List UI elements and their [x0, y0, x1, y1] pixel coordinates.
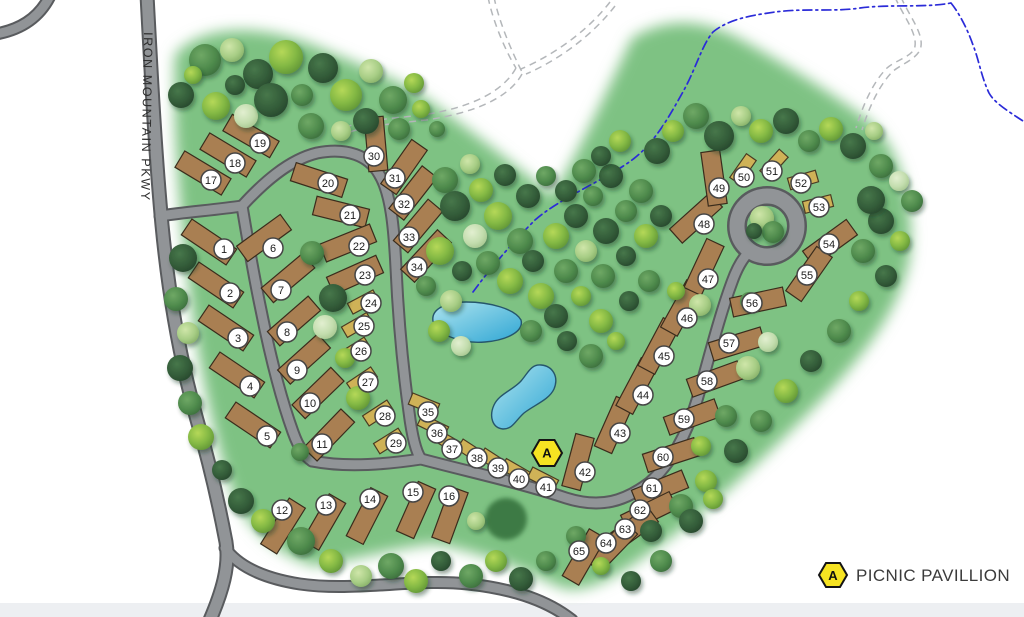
- site-number: 11: [316, 439, 327, 451]
- site-number-marker: 45: [654, 346, 674, 366]
- site-number: 50: [738, 172, 750, 184]
- site-number: 10: [304, 398, 316, 410]
- site-number: 15: [407, 487, 419, 499]
- tree-icon: [851, 239, 875, 263]
- tree-icon: [875, 265, 897, 287]
- tree-icon: [167, 355, 193, 381]
- site-number-marker: 54: [819, 234, 839, 254]
- site-number: 37: [446, 444, 458, 456]
- tree-icon: [564, 204, 588, 228]
- tree-icon: [599, 164, 623, 188]
- site-number-marker: 29: [386, 433, 406, 453]
- site-number-marker: 52: [791, 173, 811, 193]
- site-number: 19: [254, 138, 266, 150]
- tree-icon: [890, 231, 910, 251]
- tree-icon: [452, 261, 472, 281]
- tree-icon: [615, 200, 637, 222]
- tree-icon: [616, 246, 636, 266]
- tree-icon: [629, 179, 653, 203]
- site-number: 48: [698, 219, 710, 231]
- site-number: 29: [390, 438, 402, 450]
- tree-icon: [308, 53, 338, 83]
- tree-icon: [683, 103, 709, 129]
- site-number: 64: [600, 538, 612, 550]
- site-number-marker: 53: [809, 197, 829, 217]
- site-number: 26: [355, 346, 367, 358]
- site-number-marker: 47: [698, 269, 718, 289]
- site-number-marker: 19: [250, 133, 270, 153]
- site-number-marker: 6: [263, 238, 283, 258]
- site-number: 13: [320, 500, 332, 512]
- tree-clump-patch: [485, 498, 527, 540]
- site-number: 63: [619, 524, 631, 536]
- tree-icon: [330, 79, 362, 111]
- site-number-marker: 13: [316, 495, 336, 515]
- tree-icon: [840, 133, 866, 159]
- site-number-marker: 25: [354, 316, 374, 336]
- site-number-marker: 61: [642, 478, 662, 498]
- tree-icon: [497, 268, 523, 294]
- tree-icon: [507, 228, 533, 254]
- tree-icon: [736, 356, 760, 380]
- tree-icon: [857, 186, 885, 214]
- tree-icon: [849, 291, 869, 311]
- tree-icon: [572, 159, 596, 183]
- site-number-marker: 3: [228, 328, 248, 348]
- site-number-marker: 60: [653, 447, 673, 467]
- tree-icon: [225, 75, 245, 95]
- site-number-marker: 41: [536, 477, 556, 497]
- site-number-marker: 42: [575, 462, 595, 482]
- site-number-marker: 48: [694, 214, 714, 234]
- site-number: 35: [422, 407, 434, 419]
- site-number-marker: 56: [742, 293, 762, 313]
- site-number: 25: [358, 321, 370, 333]
- tree-icon: [554, 259, 578, 283]
- tree-icon: [609, 130, 631, 152]
- site-number: 34: [411, 262, 423, 274]
- site-number-marker: 39: [488, 458, 508, 478]
- site-number: 4: [247, 381, 253, 393]
- site-number: 18: [229, 158, 241, 170]
- site-number: 40: [513, 474, 525, 486]
- site-number-marker: 7: [271, 280, 291, 300]
- tree-icon: [404, 569, 428, 593]
- site-number-marker: 33: [399, 227, 419, 247]
- tree-icon: [313, 315, 337, 339]
- site-number: 27: [362, 377, 374, 389]
- site-number: 16: [443, 491, 455, 503]
- tree-icon: [544, 304, 568, 328]
- site-number-marker: 57: [719, 333, 739, 353]
- site-number-marker: 64: [596, 533, 616, 553]
- tree-icon: [827, 319, 851, 343]
- site-number: 24: [365, 298, 377, 310]
- site-number-marker: 15: [403, 482, 423, 502]
- tree-icon: [476, 251, 500, 275]
- tree-icon: [428, 320, 450, 342]
- tree-icon: [774, 379, 798, 403]
- tree-icon: [516, 184, 540, 208]
- legend-label: PICNIC PAVILLION: [856, 566, 1010, 585]
- campground-site-map: 1234567891011121314151617181920212223242…: [0, 0, 1024, 617]
- site-number: 32: [398, 199, 410, 211]
- tree-icon: [234, 104, 258, 128]
- tree-icon: [251, 509, 275, 533]
- site-number: 60: [657, 452, 669, 464]
- tree-icon: [901, 190, 923, 212]
- tree-icon: [188, 424, 214, 450]
- site-number-marker: 11: [312, 434, 332, 454]
- tree-icon: [169, 244, 197, 272]
- tree-icon: [404, 73, 424, 93]
- site-number: 9: [294, 365, 300, 377]
- tree-icon: [431, 551, 451, 571]
- tree-icon: [750, 410, 772, 432]
- map-canvas: 1234567891011121314151617181920212223242…: [0, 0, 1024, 617]
- tree-icon: [638, 270, 660, 292]
- site-number-marker: 18: [225, 153, 245, 173]
- site-number-marker: 17: [201, 170, 221, 190]
- tree-icon: [300, 241, 324, 265]
- tree-icon: [650, 205, 672, 227]
- tree-icon: [460, 154, 480, 174]
- site-number-marker: 28: [375, 406, 395, 426]
- site-number: 47: [702, 274, 714, 286]
- site-number: 8: [284, 327, 290, 339]
- tree-icon: [184, 66, 202, 84]
- site-number: 20: [322, 178, 334, 190]
- tree-icon: [350, 565, 372, 587]
- site-number: 43: [614, 428, 626, 440]
- tree-icon: [557, 331, 577, 351]
- tree-icon: [429, 121, 445, 137]
- site-number: 44: [637, 390, 649, 402]
- tree-icon: [291, 84, 313, 106]
- site-number-marker: 27: [358, 372, 378, 392]
- tree-icon: [536, 551, 556, 571]
- bottom-gray-strip: [0, 603, 1024, 617]
- site-number-marker: 24: [361, 293, 381, 313]
- tree-icon: [509, 567, 533, 591]
- tree-icon: [298, 113, 324, 139]
- site-number-marker: 9: [287, 360, 307, 380]
- tree-icon: [703, 489, 723, 509]
- site-number-marker: 32: [394, 194, 414, 214]
- tree-icon: [220, 38, 244, 62]
- tree-icon: [555, 180, 577, 202]
- site-number-marker: 23: [355, 265, 375, 285]
- site-number: 53: [813, 202, 825, 214]
- tree-icon: [353, 108, 379, 134]
- site-number-marker: 34: [407, 257, 427, 277]
- site-number-marker: 30: [364, 146, 384, 166]
- site-number-marker: 5: [257, 426, 277, 446]
- tree-icon: [704, 121, 734, 151]
- tree-icon: [459, 564, 483, 588]
- tree-icon: [287, 527, 315, 555]
- tree-icon: [679, 509, 703, 533]
- site-number: 6: [270, 243, 276, 255]
- site-number: 22: [353, 241, 365, 253]
- tree-icon: [865, 122, 883, 140]
- site-number-marker: 43: [610, 423, 630, 443]
- tree-icon: [746, 223, 762, 239]
- tree-icon: [607, 332, 625, 350]
- site-number-marker: 37: [442, 439, 462, 459]
- site-number-marker: 51: [762, 161, 782, 181]
- tree-icon: [178, 391, 202, 415]
- site-number-marker: 65: [569, 541, 589, 561]
- tree-icon: [621, 571, 641, 591]
- tree-icon: [494, 164, 516, 186]
- tree-icon: [592, 557, 610, 575]
- site-number-marker: 31: [385, 168, 405, 188]
- site-number: 41: [540, 482, 552, 494]
- tree-icon: [762, 221, 784, 243]
- site-number-marker: 10: [300, 393, 320, 413]
- site-number-marker: 36: [427, 423, 447, 443]
- tree-icon: [451, 336, 471, 356]
- site-number-marker: 59: [674, 409, 694, 429]
- tree-icon: [291, 443, 309, 461]
- tree-icon: [168, 82, 194, 108]
- tree-icon: [749, 119, 773, 143]
- tree-icon: [467, 512, 485, 530]
- tree-icon: [593, 218, 619, 244]
- site-number: 1: [221, 244, 227, 256]
- site-number: 14: [364, 494, 376, 506]
- site-number: 62: [634, 505, 646, 517]
- tree-icon: [319, 284, 347, 312]
- site-number: 5: [264, 431, 270, 443]
- tree-icon: [331, 121, 351, 141]
- tree-icon: [536, 166, 556, 186]
- tree-icon: [662, 120, 684, 142]
- site-number-marker: 22: [349, 236, 369, 256]
- site-number: 65: [573, 546, 585, 558]
- site-number-marker: 58: [697, 371, 717, 391]
- tree-icon: [724, 439, 748, 463]
- site-number: 42: [579, 467, 591, 479]
- tree-icon: [575, 240, 597, 262]
- tree-icon: [634, 224, 658, 248]
- tree-icon: [202, 92, 230, 120]
- site-number: 45: [658, 351, 670, 363]
- tree-icon: [388, 118, 410, 140]
- site-number-marker: 62: [630, 500, 650, 520]
- tree-icon: [432, 167, 458, 193]
- tree-icon: [644, 138, 670, 164]
- site-number: 17: [205, 175, 217, 187]
- site-number-marker: 55: [797, 265, 817, 285]
- site-number: 58: [701, 376, 713, 388]
- tree-icon: [650, 550, 672, 572]
- tree-icon: [819, 117, 843, 141]
- site-number: 31: [389, 173, 401, 185]
- tree-icon: [426, 237, 454, 265]
- tree-icon: [731, 106, 751, 126]
- site-number: 36: [431, 428, 443, 440]
- tree-icon: [463, 224, 487, 248]
- site-number-marker: 44: [633, 385, 653, 405]
- site-number: 38: [471, 453, 483, 465]
- site-number: 52: [795, 178, 807, 190]
- tree-icon: [416, 276, 436, 296]
- site-number-marker: 1: [214, 239, 234, 259]
- site-number: 30: [368, 151, 380, 163]
- site-number: 2: [227, 288, 233, 300]
- tree-icon: [579, 344, 603, 368]
- site-number-marker: 2: [220, 283, 240, 303]
- tree-icon: [440, 191, 470, 221]
- site-number: 28: [379, 411, 391, 423]
- site-number: 51: [766, 166, 778, 178]
- tree-icon: [800, 350, 822, 372]
- svg-text:A: A: [542, 446, 552, 461]
- tree-icon: [528, 283, 554, 309]
- site-number-marker: 35: [418, 402, 438, 422]
- tree-icon: [667, 282, 685, 300]
- tree-icon: [798, 130, 820, 152]
- tree-icon: [269, 40, 303, 74]
- picnic-pavilion-marker-icon: A: [532, 440, 562, 466]
- site-number-marker: 21: [340, 205, 360, 225]
- site-number: 33: [403, 232, 415, 244]
- site-number: 12: [276, 505, 288, 517]
- site-number-marker: 46: [677, 308, 697, 328]
- tree-icon: [695, 470, 717, 492]
- tree-icon: [591, 264, 615, 288]
- tree-icon: [583, 186, 603, 206]
- tree-icon: [520, 320, 542, 342]
- site-number: 49: [713, 183, 725, 195]
- site-number-marker: 8: [277, 322, 297, 342]
- tree-icon: [889, 171, 909, 191]
- tree-icon: [522, 250, 544, 272]
- tree-icon: [212, 460, 232, 480]
- tree-icon: [591, 146, 611, 166]
- site-number-marker: 50: [734, 167, 754, 187]
- tree-icon: [543, 223, 569, 249]
- site-number-marker: 14: [360, 489, 380, 509]
- site-number: 23: [359, 270, 371, 282]
- tree-icon: [469, 178, 493, 202]
- site-number-marker: 20: [318, 173, 338, 193]
- site-number: 61: [646, 483, 658, 495]
- site-number: 39: [492, 463, 504, 475]
- tree-icon: [691, 436, 711, 456]
- tree-icon: [640, 520, 662, 542]
- tree-icon: [715, 405, 737, 427]
- tree-icon: [484, 202, 512, 230]
- tree-icon: [379, 86, 407, 114]
- site-number: 54: [823, 239, 835, 251]
- site-number-marker: 49: [709, 178, 729, 198]
- tree-icon: [869, 154, 893, 178]
- site-number-marker: 63: [615, 519, 635, 539]
- tree-icon: [440, 290, 462, 312]
- site-number: 3: [235, 333, 241, 345]
- site-number-marker: 16: [439, 486, 459, 506]
- tree-icon: [319, 549, 343, 573]
- tree-icon: [589, 309, 613, 333]
- site-number: 57: [723, 338, 735, 350]
- tree-icon: [164, 287, 188, 311]
- site-number: 7: [278, 285, 284, 297]
- site-number: 21: [344, 210, 356, 222]
- tree-icon: [228, 488, 254, 514]
- site-number-marker: 26: [351, 341, 371, 361]
- site-number: 55: [801, 270, 813, 282]
- tree-icon: [177, 322, 199, 344]
- site-number-marker: 38: [467, 448, 487, 468]
- tree-icon: [571, 286, 591, 306]
- tree-icon: [254, 83, 288, 117]
- road-label-iron-mountain-pkwy: IRON MOUNTAIN PKWY: [138, 32, 155, 202]
- site-number-marker: 4: [240, 376, 260, 396]
- tree-icon: [359, 59, 383, 83]
- tree-icon: [773, 108, 799, 134]
- site-number: 56: [746, 298, 758, 310]
- tree-icon: [412, 100, 430, 118]
- site-number: 59: [678, 414, 690, 426]
- tree-icon: [378, 553, 404, 579]
- tree-icon: [619, 291, 639, 311]
- site-number-marker: 40: [509, 469, 529, 489]
- site-number: 46: [681, 313, 693, 325]
- legend-marker-letter: A: [828, 568, 838, 583]
- site-number-marker: 12: [272, 500, 292, 520]
- tree-icon: [485, 550, 507, 572]
- tree-icon: [758, 332, 778, 352]
